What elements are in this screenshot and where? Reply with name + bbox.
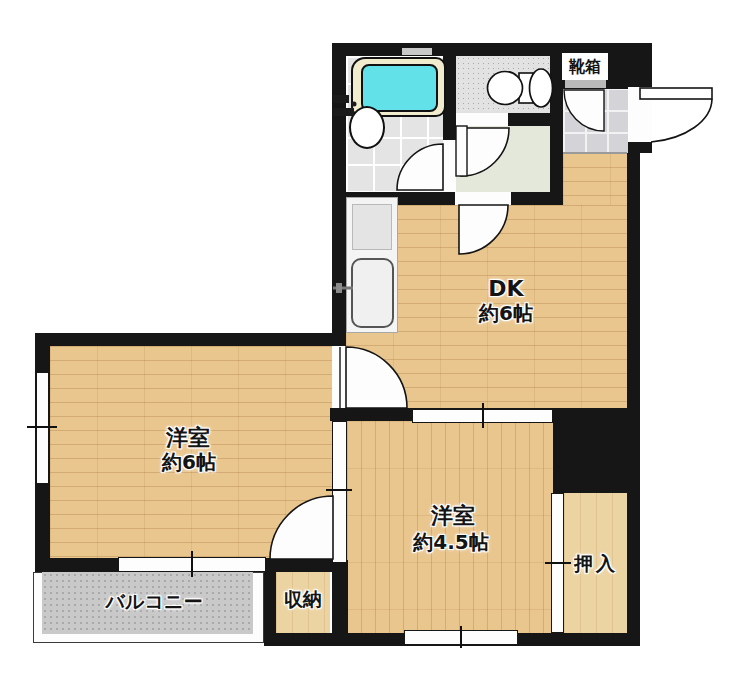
doorway-bathroom [443,140,456,192]
sliding-door-dk-to-western45 [412,409,553,423]
front-door-arc [651,99,712,142]
doorway-dk-to-western6 [332,346,346,408]
wall-dk-left [332,205,346,346]
doorway-toilet [456,113,508,126]
shoebox-shelf [565,80,606,88]
bathroom-vent-window [402,48,432,55]
wall-western6-top [35,333,346,346]
washroom-hall-floor [456,126,550,192]
storage-label: 収納 [284,590,322,609]
toilet-room-floor [456,56,550,113]
oshiire-sliding-door [551,493,564,633]
oshiire-label: 押入 [574,554,618,573]
bathtub-water [361,64,438,112]
kitchen-stove [352,204,392,250]
western45-label: 洋室 [431,505,475,527]
balcony-label: バルコニー [106,592,203,611]
wall-storage-right [332,560,348,645]
wall-right [627,153,640,645]
doorway-hall-to-dk [455,192,511,205]
dk-size-label: 約6帖 [479,303,533,323]
western6-size-label: 約6帖 [162,452,216,472]
shoebox-label: 靴箱 [569,59,601,75]
shoebox-cabinet: 靴箱 [562,53,608,80]
wall-left-upper-section [332,43,346,205]
entrance-tile-floor [563,88,628,153]
kitchen-sink [351,258,394,328]
entrance-corridor-floor [563,153,627,205]
floorplan-canvas: 靴箱 [0,0,735,686]
dead-space-block [553,421,640,493]
entrance-step-edge [563,152,627,154]
window-western45-bottom [404,630,518,645]
western45-size-label: 約4.5帖 [413,532,488,552]
western6-label: 洋室 [166,427,210,449]
bathroom-sink [349,106,385,149]
sliding-panel-western6-western45 [332,421,347,563]
dk-label: DK [488,278,523,300]
doorway-front-entrance [628,87,652,142]
window-western6-left [35,373,50,483]
balcony-sliding-door [118,557,266,572]
